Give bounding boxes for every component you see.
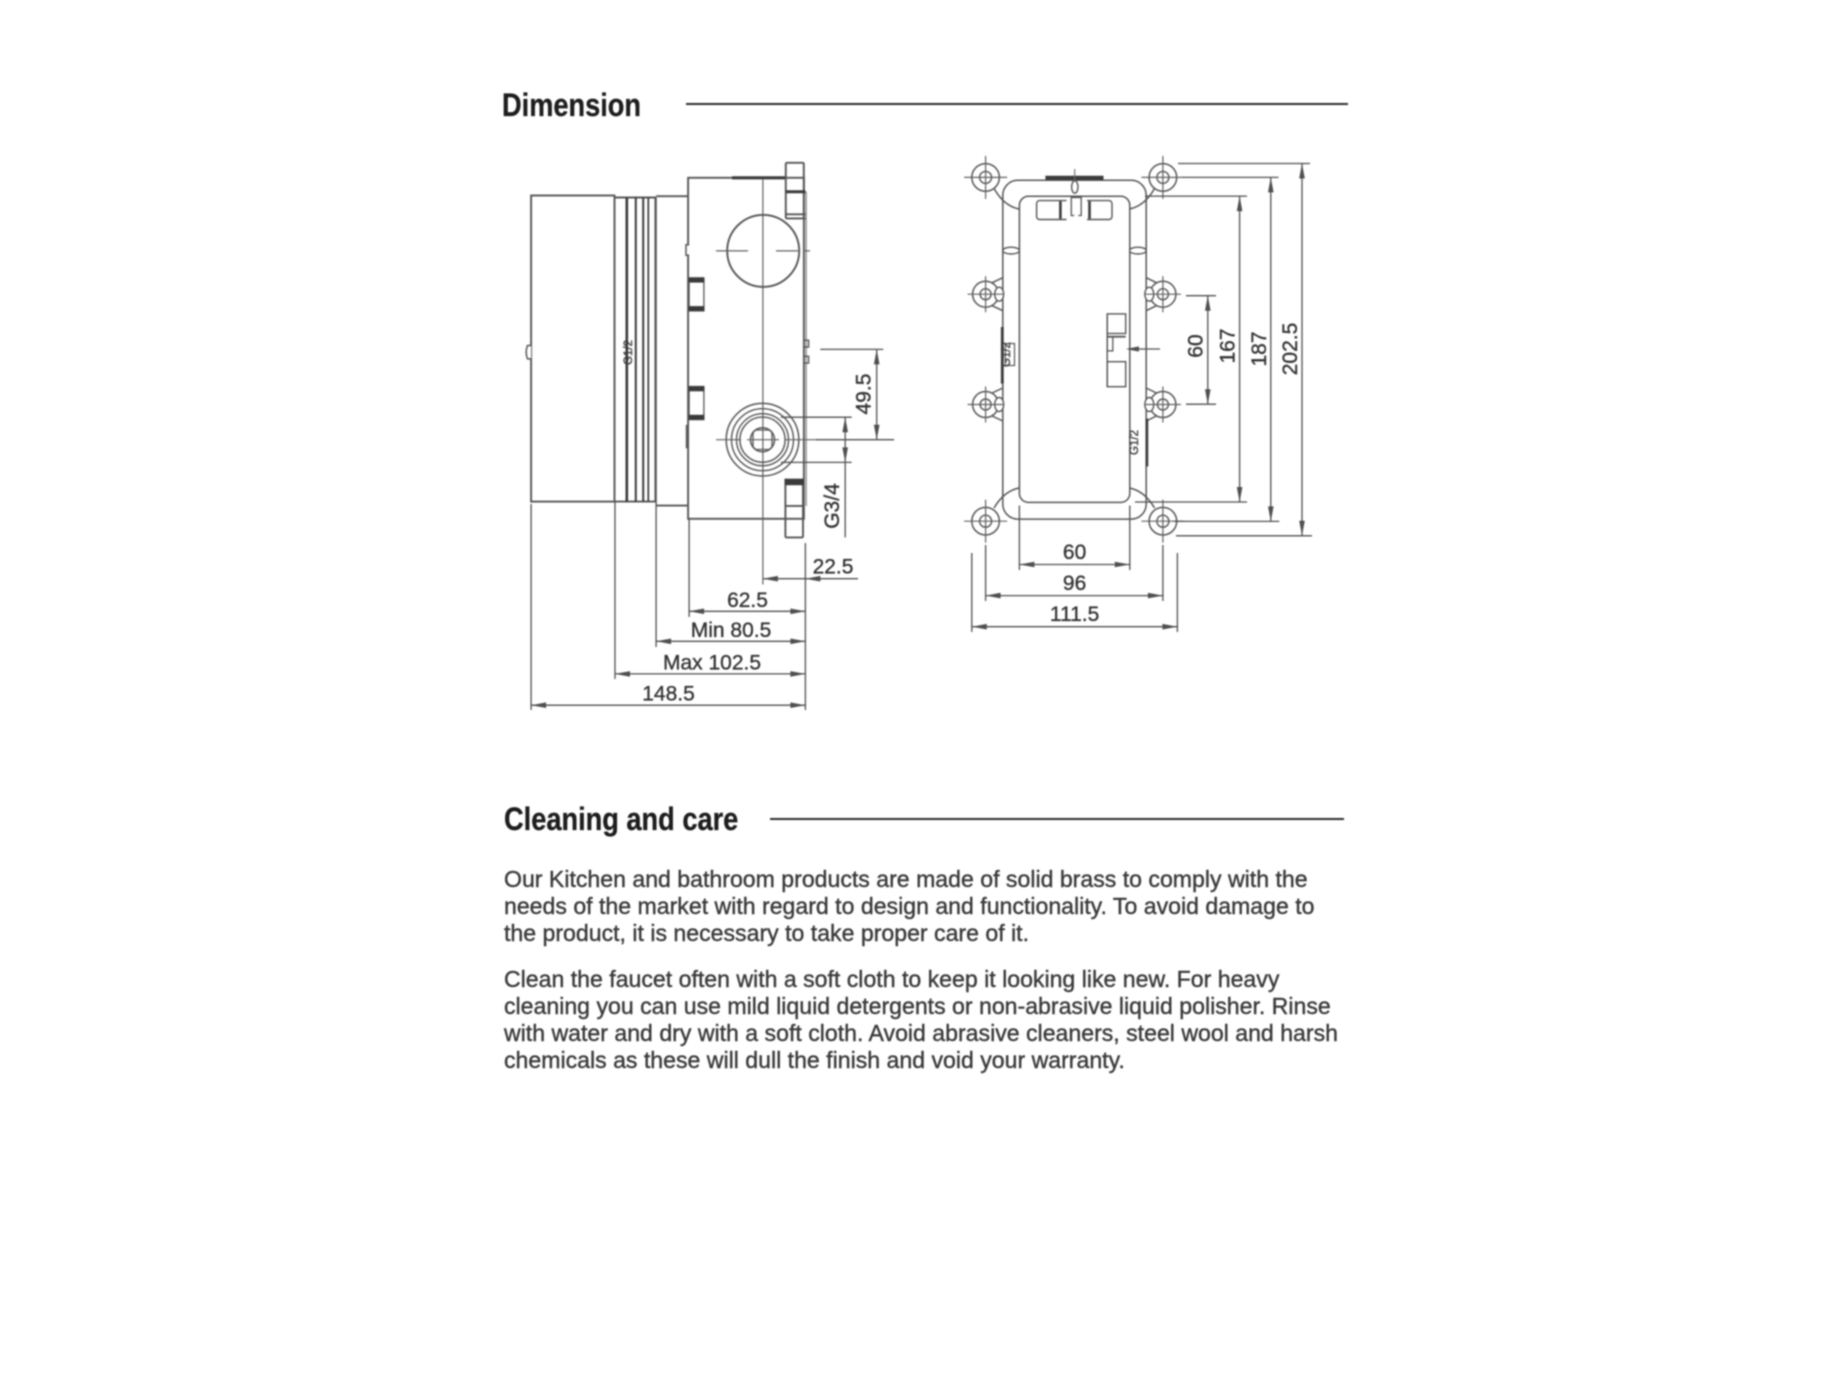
svg-text:96: 96 xyxy=(1063,572,1086,595)
svg-text:167: 167 xyxy=(1217,328,1240,363)
svg-text:22.5: 22.5 xyxy=(813,556,854,579)
svg-text:49.5: 49.5 xyxy=(853,374,876,415)
svg-text:60: 60 xyxy=(1184,334,1207,357)
svg-text:G3/4: G3/4 xyxy=(821,483,844,529)
svg-text:187: 187 xyxy=(1248,331,1271,366)
svg-text:G1/2: G1/2 xyxy=(1129,430,1141,455)
svg-text:Max 102.5: Max 102.5 xyxy=(663,651,761,674)
svg-text:62.5: 62.5 xyxy=(727,589,768,612)
svg-text:G1/2: G1/2 xyxy=(623,340,635,365)
svg-text:G1/2: G1/2 xyxy=(1001,342,1013,367)
svg-text:Min 80.5: Min 80.5 xyxy=(691,619,772,642)
svg-text:111.5: 111.5 xyxy=(1050,603,1099,626)
svg-text:202.5: 202.5 xyxy=(1279,323,1302,376)
svg-text:148.5: 148.5 xyxy=(642,683,695,706)
svg-text:60: 60 xyxy=(1063,541,1086,564)
